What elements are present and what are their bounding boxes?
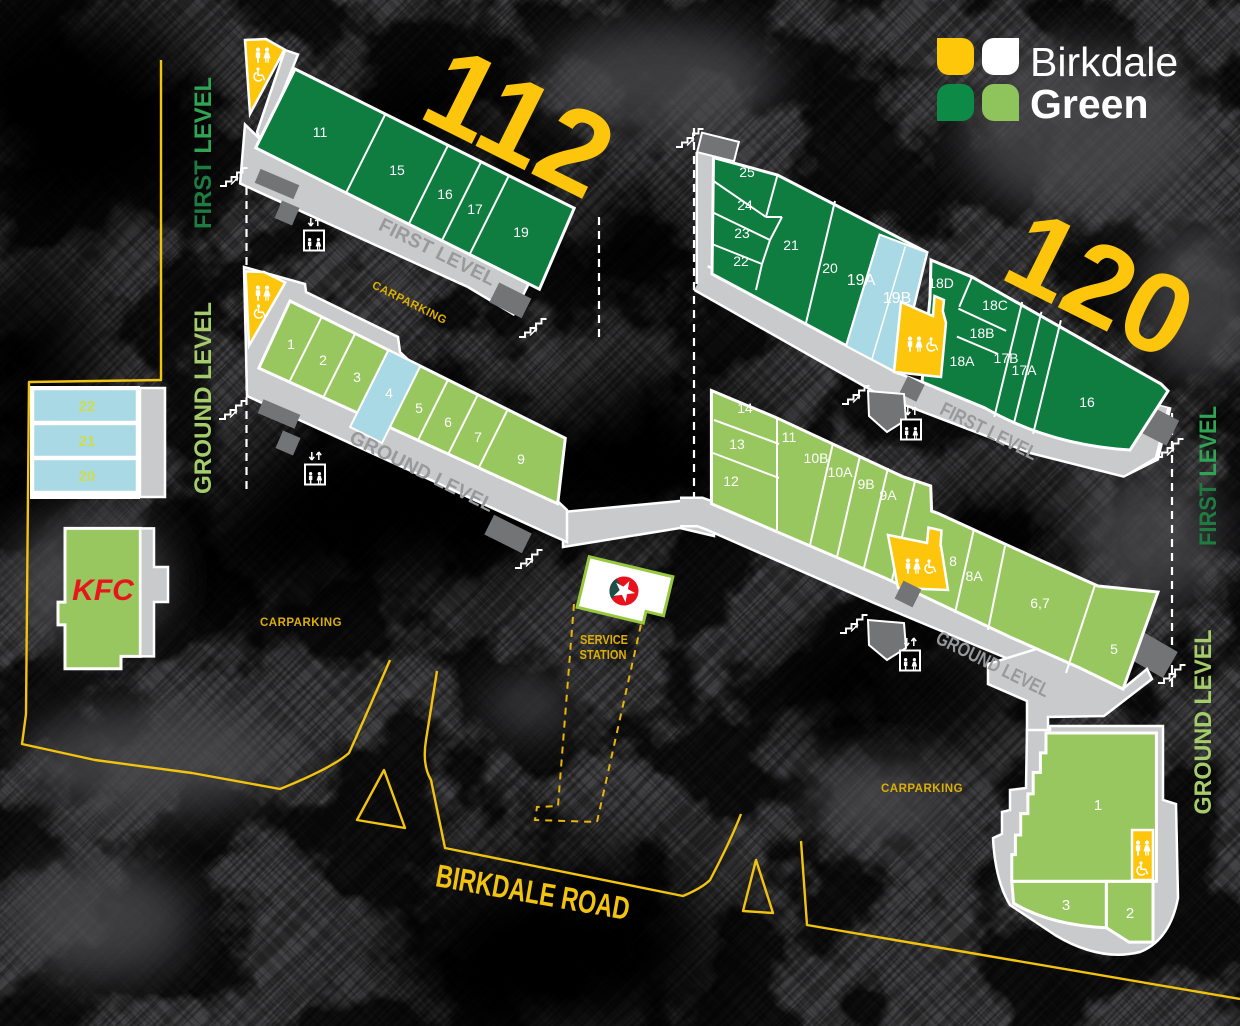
svg-text:7: 7 — [474, 429, 482, 445]
svg-text:5: 5 — [415, 400, 423, 416]
svg-text:1: 1 — [287, 336, 295, 352]
svg-text:8A: 8A — [965, 568, 983, 584]
svg-text:18A: 18A — [950, 353, 976, 369]
svg-text:20: 20 — [79, 468, 96, 485]
svg-text:11: 11 — [782, 429, 797, 445]
svg-text:Green: Green — [1030, 81, 1149, 127]
svg-text:2: 2 — [1126, 905, 1134, 922]
svg-text:16: 16 — [437, 186, 453, 202]
svg-text:25: 25 — [739, 164, 755, 180]
svg-text:KFC: KFC — [72, 574, 135, 607]
svg-text:1: 1 — [1094, 797, 1102, 814]
svg-text:22: 22 — [733, 253, 749, 269]
svg-text:19B: 19B — [883, 290, 911, 307]
svg-text:11: 11 — [313, 124, 328, 140]
svg-text:FIRST LEVEL: FIRST LEVEL — [190, 77, 217, 229]
svg-text:24: 24 — [737, 197, 753, 213]
svg-text:20: 20 — [822, 260, 838, 276]
svg-text:9: 9 — [517, 451, 525, 467]
svg-text:Birkdale: Birkdale — [1030, 39, 1178, 85]
svg-text:10A: 10A — [828, 464, 854, 480]
svg-text:17A: 17A — [1012, 362, 1038, 378]
svg-text:GROUND LEVEL: GROUND LEVEL — [1190, 630, 1217, 815]
svg-text:21: 21 — [783, 237, 799, 253]
svg-text:12: 12 — [723, 473, 739, 489]
svg-text:CARPARKING: CARPARKING — [881, 783, 963, 795]
svg-text:8: 8 — [949, 553, 957, 569]
svg-text:14: 14 — [737, 400, 753, 416]
svg-text:18D: 18D — [928, 275, 954, 291]
svg-text:10B: 10B — [804, 450, 829, 466]
svg-text:23: 23 — [734, 225, 750, 241]
svg-text:13: 13 — [729, 436, 745, 452]
svg-text:CARPARKING: CARPARKING — [260, 617, 342, 629]
svg-text:18B: 18B — [970, 325, 995, 341]
svg-text:3: 3 — [353, 369, 361, 385]
svg-text:19A: 19A — [847, 272, 876, 289]
svg-text:6,7: 6,7 — [1030, 595, 1050, 611]
svg-text:16: 16 — [1079, 394, 1095, 410]
svg-text:STATION: STATION — [580, 648, 627, 662]
svg-text:9B: 9B — [857, 476, 874, 492]
svg-text:15: 15 — [389, 162, 405, 178]
svg-text:9A: 9A — [879, 487, 897, 503]
svg-text:SERVICE: SERVICE — [580, 633, 628, 647]
svg-text:4: 4 — [385, 385, 393, 401]
svg-text:3: 3 — [1062, 897, 1070, 914]
svg-text:21: 21 — [79, 433, 96, 450]
svg-text:17: 17 — [467, 201, 483, 217]
svg-text:FIRST LEVEL: FIRST LEVEL — [1195, 406, 1222, 546]
svg-text:19: 19 — [513, 224, 529, 240]
svg-text:2: 2 — [319, 352, 327, 368]
svg-text:22: 22 — [79, 398, 96, 415]
svg-text:6: 6 — [444, 414, 452, 430]
svg-text:GROUND LEVEL: GROUND LEVEL — [190, 302, 217, 494]
svg-text:5: 5 — [1110, 641, 1118, 657]
